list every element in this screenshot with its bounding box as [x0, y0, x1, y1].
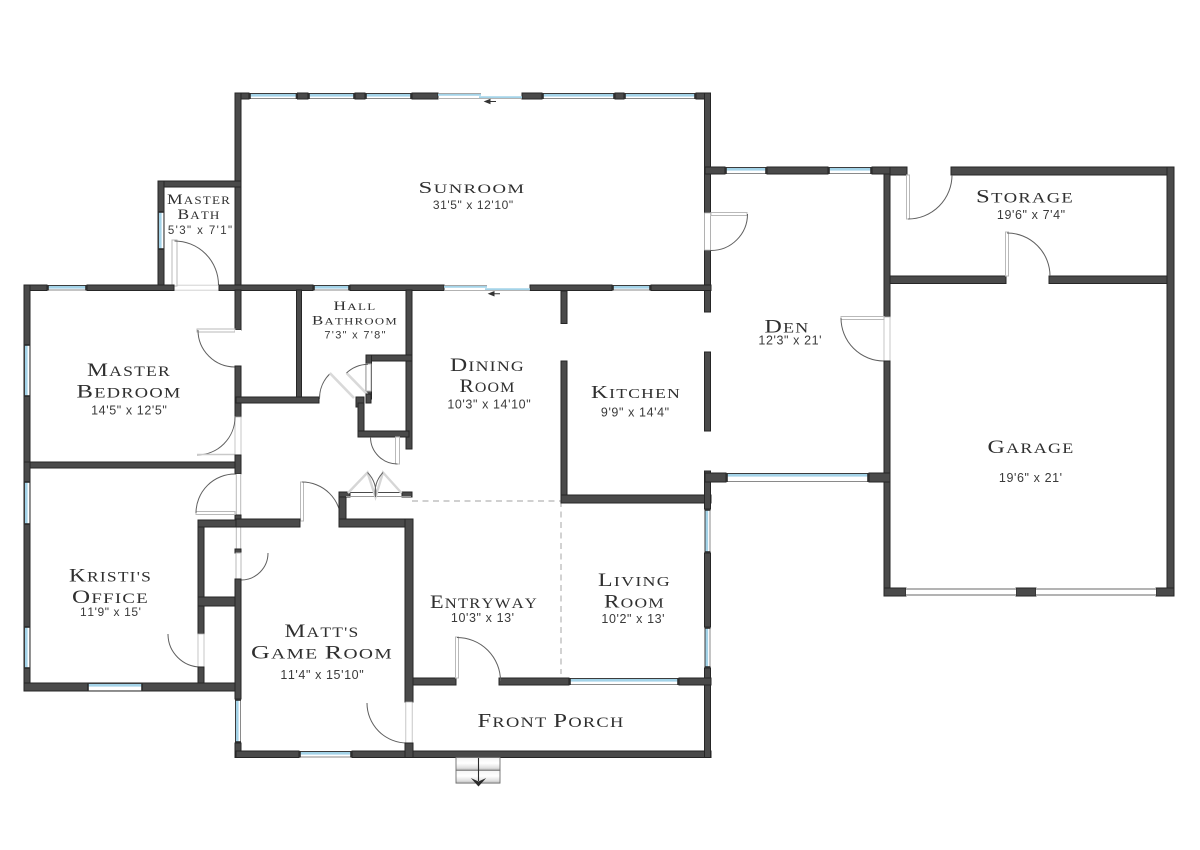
svg-text:19'6" x 21': 19'6" x 21'	[999, 471, 1063, 485]
svg-text:ROOM: ROOM	[460, 376, 516, 397]
svg-text:11'4" x 15'10": 11'4" x 15'10"	[280, 668, 364, 682]
svg-text:MASTER: MASTER	[87, 360, 171, 381]
svg-text:14'5" x 12'5": 14'5" x 12'5"	[91, 404, 167, 418]
svg-text:10'3" x 14'10": 10'3" x 14'10"	[447, 398, 531, 412]
svg-text:STORAGE: STORAGE	[976, 187, 1074, 208]
svg-text:31'5" x 12'10": 31'5" x 12'10"	[433, 198, 514, 212]
svg-text:BEDROOM: BEDROOM	[77, 382, 182, 403]
svg-text:GAME ROOM: GAME ROOM	[251, 643, 393, 664]
svg-text:9'9" x 14'4": 9'9" x 14'4"	[601, 406, 670, 420]
svg-text:7'3" x 7'8": 7'3" x 7'8"	[324, 330, 386, 342]
svg-text:ENTRYWAY: ENTRYWAY	[430, 592, 538, 613]
svg-text:FRONT PORCH: FRONT PORCH	[478, 711, 625, 732]
svg-text:19'6" x 7'4": 19'6" x 7'4"	[997, 208, 1066, 222]
svg-text:GARAGE: GARAGE	[988, 437, 1075, 458]
svg-text:10'2" x 13': 10'2" x 13'	[601, 612, 665, 626]
svg-text:11'9" x 15': 11'9" x 15'	[80, 605, 141, 619]
svg-text:12'3" x 21': 12'3" x 21'	[758, 334, 822, 348]
svg-text:5'3" x 7'1": 5'3" x 7'1"	[168, 225, 234, 237]
svg-text:MATT'S: MATT'S	[285, 621, 360, 642]
svg-text:BATH: BATH	[178, 207, 221, 223]
svg-text:KRISTI'S: KRISTI'S	[69, 566, 152, 587]
svg-text:MASTER: MASTER	[167, 192, 231, 208]
svg-text:10'3" x 13': 10'3" x 13'	[451, 611, 515, 625]
svg-text:DINING: DINING	[450, 355, 525, 376]
